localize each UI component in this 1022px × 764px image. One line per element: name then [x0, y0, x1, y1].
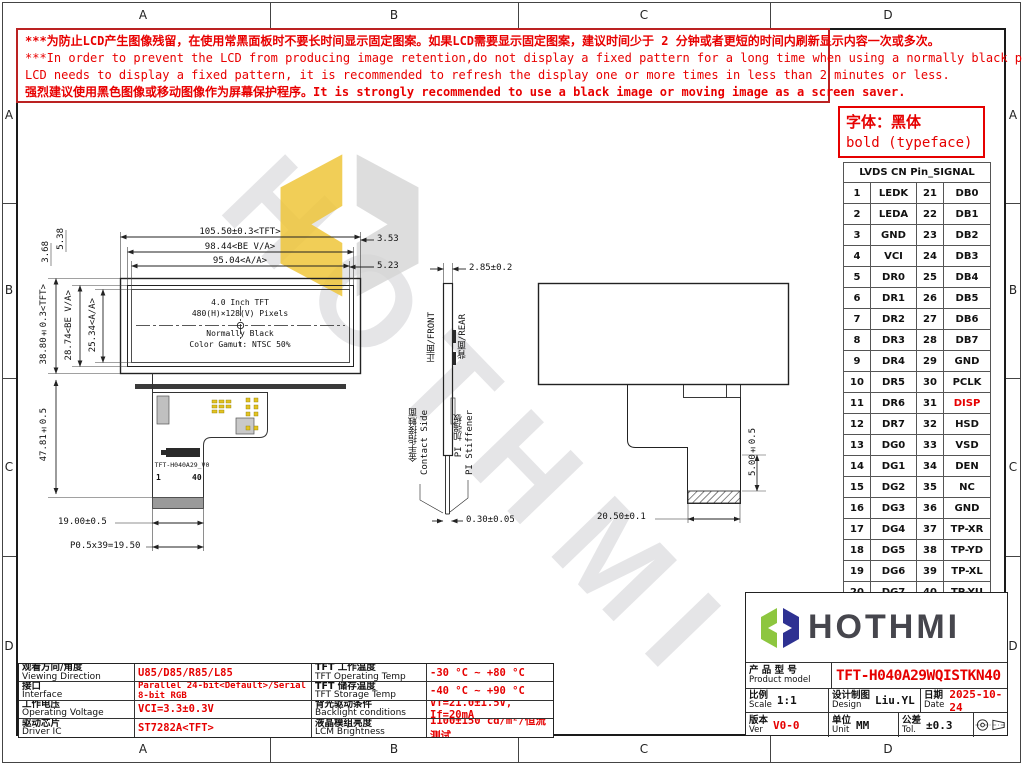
panel-spec-text: 4.0 Inch TFT [211, 298, 269, 307]
product-model-value: TFT-H040A29WQISTKN40 [832, 663, 1007, 688]
pin-table-row: 2LEDA22DB1 [844, 204, 990, 225]
pin-table-row: 15DG235NC [844, 477, 990, 498]
dim-label: 3.53 [377, 234, 399, 244]
warning-line: ***为防止LCD产生图像残留，在使用常黑面板时不要长时间显示固定图案。如果LC… [25, 33, 821, 50]
product-model-row: 产 品 型 号Product model TFT-H040A29WQISTKN4… [746, 663, 1007, 689]
dim-label: P0.5x39=19.50 [70, 541, 140, 551]
hothmi-logo-icon [756, 604, 804, 652]
title-block: HOTHMI 产 品 型 号Product model TFT-H040A29W… [745, 592, 1008, 736]
unit-cell: 单位Unit MM [829, 713, 899, 737]
warning-line: 强烈建议使用黑色图像或移动图像作为屏幕保护程序。It is strongly r… [25, 84, 821, 101]
pin-table-row: 11DR631DISP [844, 393, 990, 414]
drawing-sheet: HOTHMI A B C D A B C D A B C D A B C D *… [0, 0, 1022, 764]
pi-stiffener-label-zh: PI 加强板 [452, 414, 465, 457]
dim-label: 5.00±0.5 [748, 428, 758, 476]
spec-label: 接口Interface [19, 682, 135, 700]
pin-table-row: 13DG033VSD [844, 435, 990, 456]
panel-spec-text: Color Gamut: NTSC 50% [189, 340, 290, 349]
warning-line: LCD needs to display a fixed pattern, it… [25, 67, 821, 84]
pin-table-row: 8DR328DB7 [844, 330, 990, 351]
spec-label: 液晶模组亮度LCM Brightness [312, 719, 427, 737]
spec-value: Vf=21.0±1.5V, If=20mA [427, 701, 553, 719]
side-front-label: 正面/FRONT [425, 312, 438, 363]
pin-table-row: 9DR429GND [844, 351, 990, 372]
projection-symbol-cell [974, 713, 1007, 737]
spec-table: 观看方向/角度Viewing Direction U85/D85/R85/L85… [18, 663, 554, 738]
dim-label: 19.00±0.5 [58, 517, 107, 527]
spec-label: 观看方向/角度Viewing Direction [19, 664, 135, 682]
pin-signal-table: LVDS CN Pin_SIGNAL 1LEDK21DB0 2LEDA22DB1… [843, 162, 991, 604]
font-note-en: bold (typeface) [846, 133, 977, 153]
side-rear-label: 背面/REAR [456, 314, 469, 359]
spec-value: ST7282A<TFT> [135, 719, 312, 737]
spec-value: 1100±150 cd/m²/恒流测试 [427, 719, 553, 737]
pin-table-row: 10DR530PCLK [844, 372, 990, 393]
pin-table-row: 7DR227DB6 [844, 309, 990, 330]
font-note-box: 字体：黑体 bold (typeface) [838, 106, 985, 158]
pin-table-row: 17DG437TP-XR [844, 519, 990, 540]
pin-table-row: 14DG134DEN [844, 456, 990, 477]
spec-label: 工作电压Operating Voltage [19, 701, 135, 719]
version-cell: 版本Ver V0-0 [746, 713, 829, 737]
dim-label: 28.74<BE V/A> [64, 290, 74, 360]
contact-side-label-en: Contact Side [420, 410, 430, 475]
spec-value: -40 °C ~ +90 °C [427, 682, 553, 700]
spec-value: Parallel 24-bit<Default>/Serial 8-bit RG… [135, 682, 312, 700]
image-retention-warning: ***为防止LCD产生图像残留，在使用常黑面板时不要长时间显示固定图案。如果LC… [16, 28, 830, 103]
dim-label: 0.30±0.05 [466, 515, 515, 525]
ver-unit-tol-row: 版本Ver V0-0 单位Unit MM 公差Tol. ±0.3 [746, 713, 1007, 737]
pin-table-row: 6DR126DB5 [844, 288, 990, 309]
panel-spec-text: 480(H)×128(V) Pixels [192, 309, 288, 318]
date-cell: 日期Date 2025-10-24 [921, 689, 1007, 712]
dim-label: 5.23 [377, 261, 399, 271]
pin-table-row: 19DG639TP-XL [844, 561, 990, 582]
spec-label: 驱动芯片Driver IC [19, 719, 135, 737]
spec-value: U85/D85/R85/L85 [135, 664, 312, 682]
fpc-pin1-label: 1 [156, 473, 161, 482]
dim-label: 98.44<BE V/A> [205, 242, 275, 252]
pin-table-row: 1LEDK21DB0 [844, 183, 990, 204]
design-cell: 设计制图Design Liu.YL [829, 689, 921, 712]
spec-value: VCI=3.3±0.3V [135, 701, 312, 719]
pi-stiffener-label-en: PI Stiffener [465, 410, 475, 475]
dim-label: 95.04<A/A> [213, 256, 267, 266]
pin-table-row: 5DR025DB4 [844, 267, 990, 288]
spec-label: 背光驱动条件Backlight conditions [312, 701, 427, 719]
dim-label: 2.85±0.2 [469, 263, 512, 273]
font-note-zh: 字体：黑体 [846, 111, 977, 133]
pin-table-title: LVDS CN Pin_SIGNAL [844, 163, 990, 183]
dim-label: 47.81±0.5 [39, 408, 49, 461]
fpc-pin40-label: 40 [192, 473, 202, 482]
hothmi-wordmark: HOTHMI [808, 608, 960, 647]
dim-label: 5.38 [56, 228, 66, 250]
hothmi-logo: HOTHMI [746, 593, 1007, 663]
dim-label: 20.50±0.1 [597, 512, 646, 522]
fpc-part-label: TFT-H040A29_V0 [155, 461, 210, 469]
dim-label: 25.34<A/A> [88, 298, 98, 352]
contact-side-label-zh: 金手指接触面 [407, 408, 420, 462]
dim-label: 3.68 [41, 241, 51, 263]
pin-table-row: 18DG538TP-YD [844, 540, 990, 561]
panel-spec-text: Normally Black [206, 329, 273, 338]
spec-label: TFT 工作温度TFT Operating Temp [312, 664, 427, 682]
pin-table-row: 12DR732HSD [844, 414, 990, 435]
dim-label: 105.50±0.3<TFT> [199, 227, 280, 237]
product-model-label: 产 品 型 号Product model [746, 663, 832, 688]
pin-table-row: 16DG336GND [844, 498, 990, 519]
pin-table-row: 3GND23DB2 [844, 225, 990, 246]
tolerance-cell: 公差Tol. ±0.3 [899, 713, 974, 737]
pin-table-row: 4VCI24DB3 [844, 246, 990, 267]
scale-cell: 比例Scale 1:1 [746, 689, 829, 712]
dim-label: 38.80±0.3<TFT> [39, 284, 49, 364]
scale-design-date-row: 比例Scale 1:1 设计制图Design Liu.YL 日期Date 202… [746, 689, 1007, 713]
fpc-tail-front [153, 374, 268, 509]
third-angle-projection-icon [975, 716, 1007, 734]
warning-line: ***In order to prevent the LCD from prod… [25, 50, 821, 67]
spec-value: -30 °C ~ +80 °C [427, 664, 553, 682]
spec-label: TFT 储存温度TFT Storage Temp [312, 682, 427, 700]
